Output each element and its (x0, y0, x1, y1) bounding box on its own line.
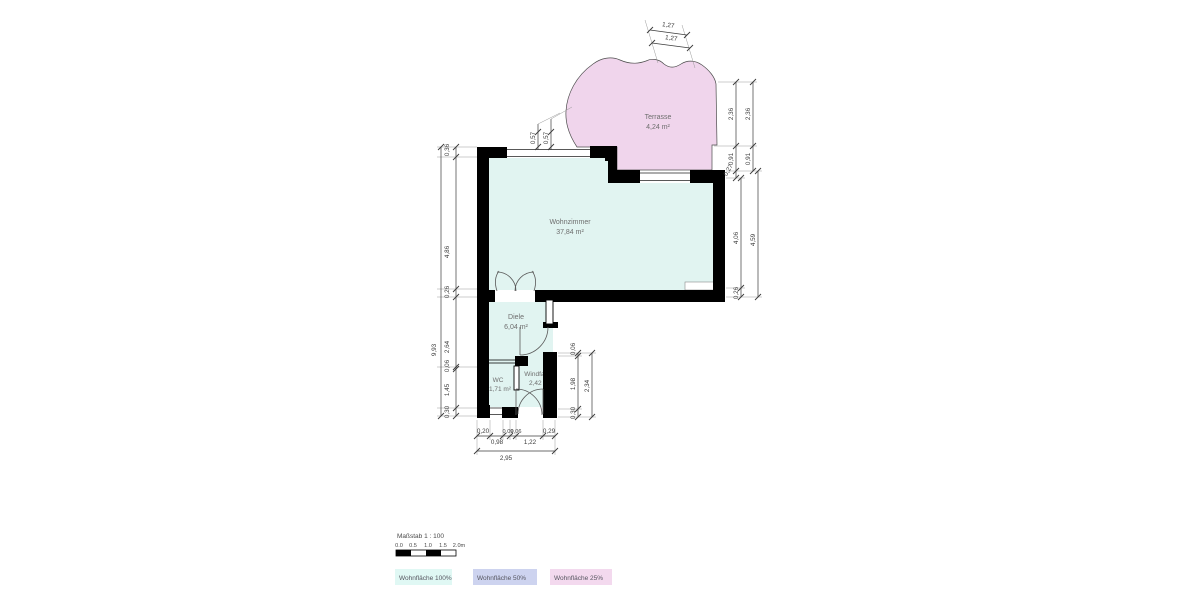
dim-bot-4: 1,22 (524, 439, 537, 446)
dim-terr-top-1: 1,27 (665, 34, 679, 43)
room-wohnzimmer (489, 158, 713, 290)
dim-left-4: 0,06 (444, 359, 451, 372)
wall-top-left-corner (477, 147, 507, 158)
wohnzimmer-label: Wohnzimmer (549, 219, 591, 226)
scale-tick-4: 2.0m (453, 543, 466, 549)
wohnzimmer-area: 37,84 m² (556, 229, 584, 236)
dim-left-5: 1,45 (444, 383, 451, 396)
dim-left-6: 0,30 (444, 405, 451, 418)
wall-left (477, 147, 489, 417)
dim-room-r-total: 4,59 (750, 233, 757, 246)
floorplan-svg: Terrasse 4,24 m² Wohnzimmer 37,84 m² Die… (0, 0, 1200, 600)
legend-item-25: Wohnfläche 25% (550, 569, 612, 585)
scale-bar-seg3 (426, 550, 441, 556)
wall-top-mid (590, 146, 617, 158)
scale-tick-3: 1.5 (439, 543, 447, 549)
legend-label-25: Wohnfläche 25% (554, 575, 603, 582)
diele-area: 6,04 m² (504, 324, 528, 331)
dim-win-1: 0,57 (543, 131, 550, 144)
scale-tick-0: 0.0 (395, 543, 403, 549)
legend-item-50: Wohnfläche 50% (473, 569, 537, 585)
wall-diele-right-thin (546, 300, 553, 324)
dim-bot-5: 0,29 (543, 428, 556, 435)
floorplan-canvas: Terrasse 4,24 m² Wohnzimmer 37,84 m² Die… (0, 0, 1200, 600)
dim-bot-total: 2,95 (500, 455, 513, 462)
dim-win-0: 0,57 (530, 131, 537, 144)
dim-left-3: 2,64 (444, 340, 451, 353)
legend-label-100: Wohnfläche 100% (399, 575, 452, 582)
dim-left-0: 0,36 (444, 143, 451, 156)
dim-room-r-0: 4,06 (733, 231, 740, 244)
window-top-right (640, 173, 690, 181)
dim-bot-1: 0,98 (491, 439, 504, 446)
scale-bar: Maßstab 1 : 100 0.0 0.5 1.0 1.5 2.0m (395, 533, 465, 556)
wc-label: WC (493, 377, 504, 384)
legend-label-50: Wohnfläche 50% (477, 575, 526, 582)
dim-terr-ro-0: 2,36 (745, 107, 752, 120)
dim-terr-ro-1: 0,91 (745, 152, 752, 165)
dim-wf-1: 1,98 (570, 377, 577, 390)
dim-wf-total: 2,34 (584, 379, 591, 392)
scale-tick-1: 0.5 (409, 543, 417, 549)
wall-mid-right (535, 290, 725, 302)
floor-step-notch (685, 282, 714, 290)
legend-item-100: Wohnfläche 100% (395, 569, 452, 585)
dim-left-total: 9,93 (431, 343, 438, 356)
wall-bottom-right-corner (543, 404, 557, 418)
room-terrasse (566, 58, 717, 170)
dim-bot-0: 0,20 (477, 428, 490, 435)
terrasse-label: Terrasse (645, 114, 672, 121)
dim-room-r-1: 0,26 (733, 286, 740, 299)
dim-bot-3: 0,06 (511, 429, 522, 435)
dim-wf-0: 0,06 (570, 342, 577, 355)
dim-wf-2: 0,30 (570, 406, 577, 419)
wall-wc-sep-block (515, 356, 528, 366)
window-bottom (490, 408, 502, 415)
wall-bottom-left-corner (477, 405, 490, 418)
dim-terr-r-0: 2,36 (728, 107, 735, 120)
dim-left-2: 0,26 (444, 285, 451, 298)
scale-title: Maßstab 1 : 100 (397, 533, 444, 540)
dim-left-1: 4,86 (444, 245, 451, 258)
scale-tick-2: 1.0 (424, 543, 432, 549)
wall-top-lower (608, 170, 640, 183)
legend: Wohnfläche 100% Wohnfläche 50% Wohnfläch… (395, 569, 612, 585)
diele-label: Diele (508, 314, 524, 321)
wall-right (713, 170, 725, 302)
wc-area: 1,71 m² (489, 386, 512, 393)
window-top-left (507, 150, 590, 157)
wall-mid-left (477, 290, 495, 302)
terrasse-area: 4,24 m² (646, 124, 670, 131)
dim-terr-top-0: 1,27 (662, 21, 676, 30)
wall-wc-windfang-sep (514, 366, 519, 390)
scale-bar-seg1 (396, 550, 411, 556)
dim-terr-r-1: 0,91 (728, 152, 735, 165)
